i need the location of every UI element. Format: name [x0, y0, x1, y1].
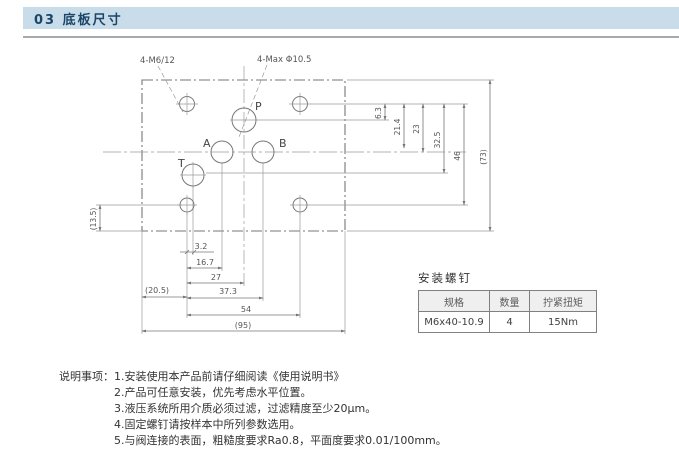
dim-3-2: 3.2	[195, 242, 208, 251]
qty-value: 4	[490, 312, 530, 333]
dim-21-4: 21.4	[393, 118, 402, 135]
col-header-torque: 拧紧扭矩	[530, 291, 597, 312]
port-a-label: A	[203, 137, 211, 150]
callout-mounting-thread: 4-M6/12	[140, 56, 175, 66]
note-item-3: 3.液压系统所用介质必须过滤，过滤精度至少20μm。	[114, 401, 447, 417]
spec-value: M6x40-10.9	[419, 312, 490, 333]
dim-23: 23	[412, 124, 421, 134]
port-t-label: T	[177, 157, 185, 170]
note-item-1: 1.安装使用本产品前请仔细阅读《使用说明书》	[114, 369, 447, 385]
callout-max-port: 4-Max Φ10.5	[257, 55, 311, 65]
mounting-holes	[176, 93, 311, 215]
note-item-2: 2.产品可任意安装，优先考虑水平位置。	[114, 385, 447, 401]
screw-table: 规格 数量 拧紧扭矩 M6x40-10.9 4 15Nm	[418, 290, 597, 333]
plate-outline	[142, 80, 345, 231]
dim-32-5: 32.5	[433, 131, 442, 148]
port-p-label: P	[255, 100, 262, 113]
screw-table-section: 安装螺钉 规格 数量 拧紧扭矩 M6x40-10.9 4 15Nm	[418, 270, 598, 333]
dim-16-7: 16.7	[196, 258, 214, 267]
dim-6-3: 6.3	[374, 107, 383, 119]
callout-leaders	[158, 65, 267, 137]
screw-table-title: 安装螺钉	[418, 270, 598, 286]
dim-95: (95)	[235, 321, 251, 330]
screw-table-header-row: 规格 数量 拧紧扭矩	[419, 291, 597, 312]
col-header-spec: 规格	[419, 291, 490, 312]
screw-table-data-row: M6x40-10.9 4 15Nm	[419, 312, 597, 333]
dim-73: (73)	[479, 149, 488, 164]
note-item-5: 5.与阀连接的表面，粗糙度要求Ra0.8，平面度要求0.01/100mm。	[114, 433, 447, 449]
dim-37-3: 37.3	[219, 287, 237, 296]
notes-section: 说明事项： 1.安装使用本产品前请仔细阅读《使用说明书》 2.产品可任意安装，优…	[59, 369, 447, 449]
note-item-4: 4.固定螺钉请按样本中所列参数选用。	[114, 417, 447, 433]
notes-label: 说明事项：	[59, 369, 114, 449]
notes-list: 1.安装使用本产品前请仔细阅读《使用说明书》 2.产品可任意安装，优先考虑水平位…	[114, 369, 447, 449]
dim-13-5: (13.5)	[89, 208, 98, 231]
catalog-page: { "header": { "title": "03 底板尺寸" }, "col…	[0, 0, 679, 457]
dim-27: 27	[211, 273, 221, 282]
dim-20-5: (20.5)	[145, 286, 169, 295]
col-header-qty: 数量	[490, 291, 530, 312]
port-b-label: B	[279, 137, 287, 150]
torque-value: 15Nm	[530, 312, 597, 333]
dim-46: 46	[453, 151, 462, 161]
dim-54: 54	[241, 305, 251, 314]
